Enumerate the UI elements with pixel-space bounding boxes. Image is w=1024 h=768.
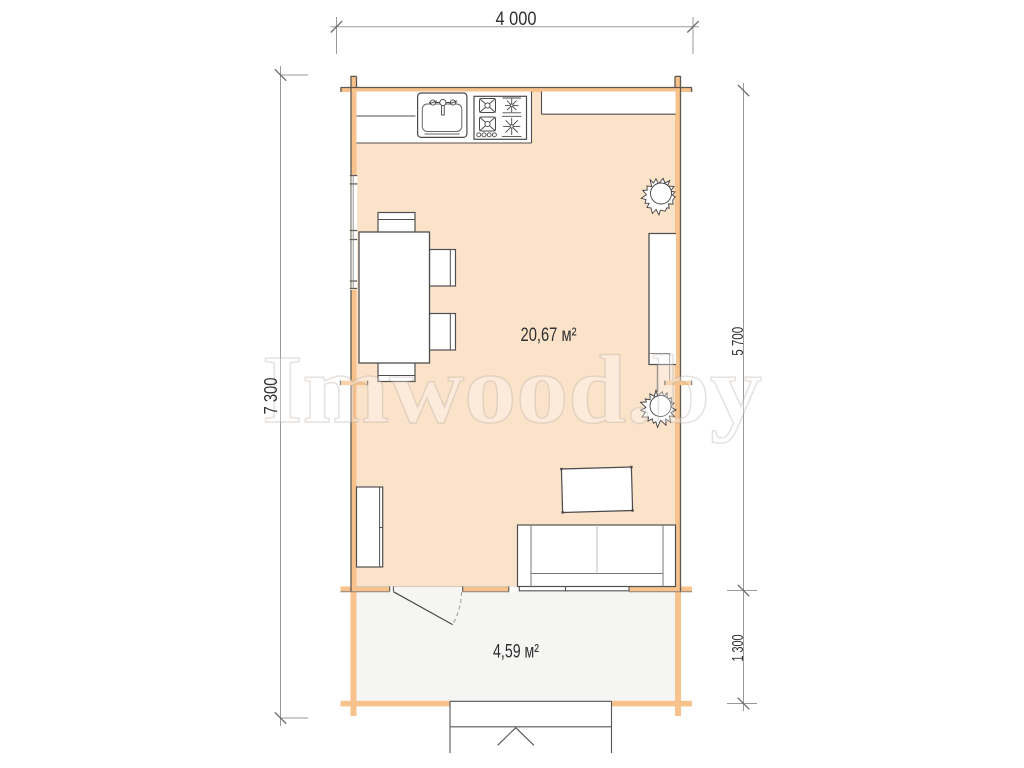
svg-text:7 300: 7 300 bbox=[261, 378, 281, 415]
svg-text:Imwood.by: Imwood.by bbox=[262, 336, 762, 443]
svg-text:1 300: 1 300 bbox=[730, 634, 747, 661]
svg-text:4,59 м²: 4,59 м² bbox=[493, 641, 539, 662]
svg-text:4 000: 4 000 bbox=[496, 8, 537, 30]
svg-text:20,67 м²: 20,67 м² bbox=[521, 325, 577, 346]
svg-text:5 700: 5 700 bbox=[730, 327, 747, 356]
